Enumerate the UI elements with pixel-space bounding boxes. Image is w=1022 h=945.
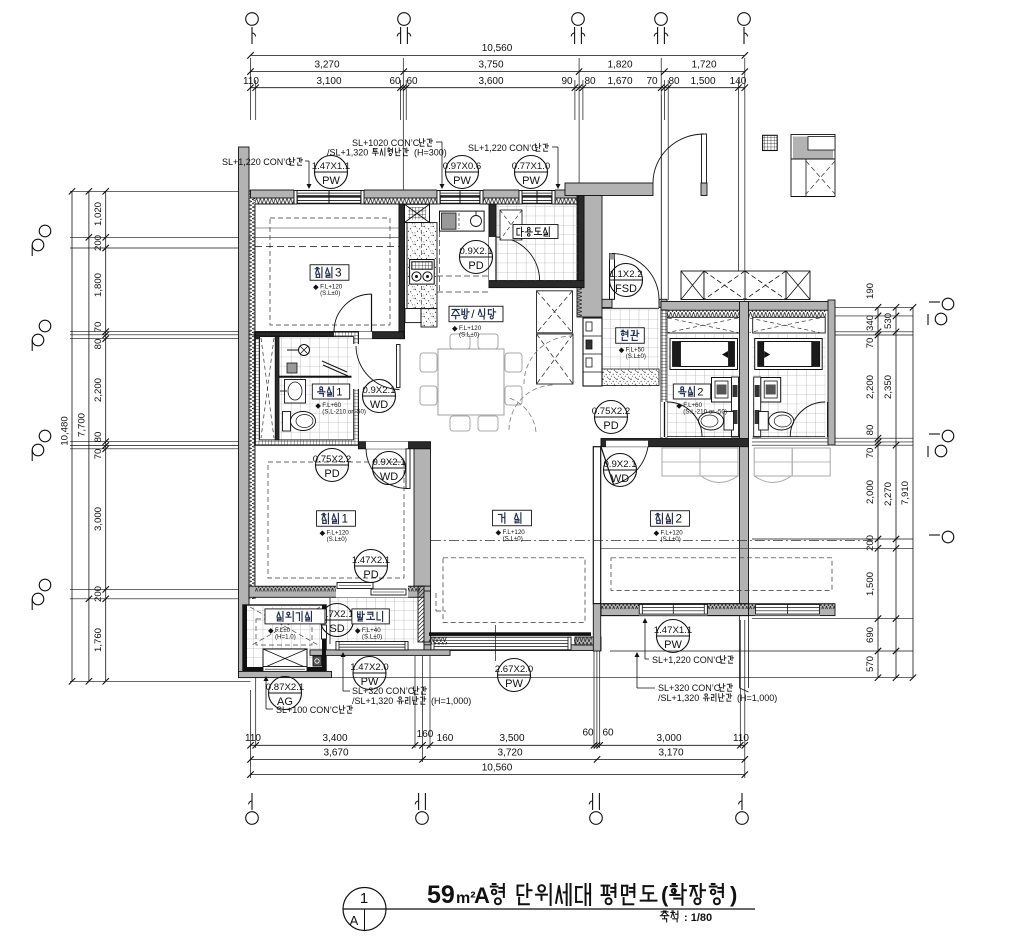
svg-text:3: 3 (335, 266, 342, 280)
svg-text:SL+1020 CON’C: SL+1020 CON’C (352, 138, 420, 148)
svg-text:10,480: 10,480 (60, 416, 71, 445)
svg-text:(S.L±0): (S.L±0) (503, 535, 523, 542)
svg-text:A: A (474, 883, 490, 908)
svg-text:340: 340 (865, 315, 876, 331)
svg-text:/SL+1,320: /SL+1,320 (658, 693, 699, 703)
svg-text:PW: PW (664, 639, 682, 651)
svg-text:1,720: 1,720 (691, 60, 716, 71)
svg-text:WD: WD (611, 473, 629, 485)
svg-text:690: 690 (865, 627, 876, 643)
svg-text:160: 160 (417, 729, 434, 740)
svg-text:2.67X2.0: 2.67X2.0 (495, 664, 533, 675)
svg-text:60: 60 (582, 728, 594, 739)
svg-text:1.47X2.1: 1.47X2.1 (352, 555, 390, 566)
svg-text:3,000: 3,000 (93, 507, 104, 531)
svg-text:70: 70 (865, 448, 876, 459)
svg-text:3,670: 3,670 (323, 748, 348, 759)
svg-text:3,400: 3,400 (322, 733, 347, 744)
svg-text:2,000: 2,000 (865, 480, 876, 504)
svg-text:2,200: 2,200 (93, 378, 104, 402)
svg-text:1: 1 (360, 890, 368, 907)
svg-text:PW: PW (522, 175, 540, 187)
svg-text:0.97X0.6: 0.97X0.6 (443, 161, 481, 172)
svg-text:1,820: 1,820 (607, 60, 632, 71)
svg-text:3,000: 3,000 (656, 733, 681, 744)
svg-text:0.75X2.2: 0.75X2.2 (592, 406, 630, 417)
svg-text:3,500: 3,500 (499, 733, 524, 744)
svg-text:70: 70 (646, 76, 658, 87)
svg-text:SL+100 CON’C: SL+100 CON’C (276, 705, 339, 715)
svg-text:2,200: 2,200 (865, 375, 876, 399)
svg-text:3,720: 3,720 (497, 748, 522, 759)
svg-text:1: 1 (336, 386, 342, 398)
svg-text:110: 110 (243, 76, 259, 87)
svg-text:SL+320 CON’C: SL+320 CON’C (658, 683, 721, 693)
svg-text:/SL+1,320: /SL+1,320 (327, 148, 368, 158)
svg-text:7,910: 7,910 (900, 481, 911, 505)
svg-text:1,500: 1,500 (690, 76, 715, 87)
svg-text:PD: PD (363, 569, 378, 581)
svg-text:80: 80 (865, 425, 876, 436)
svg-text:(S.L-210 or -50): (S.L-210 or -50) (322, 409, 366, 416)
svg-text:A: A (350, 913, 359, 928)
svg-text:1.47X2.0: 1.47X2.0 (350, 662, 388, 673)
svg-text:60: 60 (406, 76, 418, 87)
svg-text:59: 59 (427, 881, 455, 909)
svg-text:10,560: 10,560 (482, 43, 513, 54)
svg-text:0.9X2.1: 0.9X2.1 (362, 385, 395, 396)
svg-text:80: 80 (93, 339, 104, 350)
svg-text:SL+320 CON’C: SL+320 CON’C (352, 686, 415, 696)
svg-text:(H=1,000): (H=1,000) (431, 696, 471, 706)
svg-text:1,800: 1,800 (93, 273, 104, 297)
svg-text:(S.L-210 or -50): (S.L-210 or -50) (683, 409, 727, 416)
svg-text:PD: PD (324, 468, 339, 480)
svg-text:(H=1,000): (H=1,000) (737, 693, 777, 703)
svg-text:190: 190 (865, 283, 876, 299)
svg-text:0.77X1.0: 0.77X1.0 (512, 161, 550, 172)
svg-text:(S.L±0): (S.L±0) (362, 633, 382, 640)
svg-text:1.47X1.1: 1.47X1.1 (654, 625, 692, 636)
svg-text:1,670: 1,670 (607, 76, 632, 87)
svg-text:60: 60 (602, 728, 614, 739)
svg-text:70: 70 (865, 338, 876, 349)
svg-text:: 1/80: : 1/80 (684, 912, 712, 924)
svg-text:/SL+1,320: /SL+1,320 (352, 696, 393, 706)
svg-text:3,750: 3,750 (478, 60, 503, 71)
svg-text:PD: PD (468, 260, 483, 272)
svg-text:2,350: 2,350 (883, 375, 894, 399)
svg-text:2,270: 2,270 (883, 482, 894, 506)
svg-text:(S.L±0): (S.L±0) (661, 536, 681, 543)
svg-text:0.87X2.1: 0.87X2.1 (266, 682, 304, 693)
svg-text:530: 530 (883, 313, 894, 329)
svg-text:90: 90 (561, 76, 573, 87)
svg-text:SL+1,220 CON’C: SL+1,220 CON’C (222, 157, 292, 167)
svg-text:570: 570 (865, 656, 876, 672)
svg-text:3,270: 3,270 (314, 60, 339, 71)
svg-text:SL+1,220 CON’C: SL+1,220 CON’C (652, 655, 722, 665)
svg-text:7,700: 7,700 (77, 413, 88, 437)
svg-text:FSD: FSD (615, 283, 637, 295)
svg-text:3,100: 3,100 (316, 76, 341, 87)
svg-text:1,760: 1,760 (93, 628, 104, 652)
svg-text:1.47X1.1: 1.47X1.1 (312, 161, 350, 172)
svg-text:60: 60 (389, 76, 401, 87)
svg-text:3,170: 3,170 (658, 748, 683, 759)
svg-text:m²: m² (456, 890, 476, 907)
svg-text:0.9X2.1: 0.9X2.1 (603, 459, 636, 470)
svg-text:2: 2 (676, 512, 683, 526)
svg-text:200: 200 (93, 586, 104, 602)
svg-text:110: 110 (245, 733, 261, 744)
svg-text:110: 110 (733, 733, 749, 744)
svg-text:80: 80 (93, 432, 104, 443)
svg-text:WD: WD (370, 399, 388, 411)
svg-text:1.1X2.2: 1.1X2.2 (609, 269, 642, 280)
svg-text:3,600: 3,600 (478, 76, 503, 87)
svg-text:(S.L±0): (S.L±0) (320, 290, 340, 297)
svg-text:PW: PW (453, 175, 471, 187)
svg-text:2: 2 (697, 386, 703, 398)
svg-text:10,560: 10,560 (482, 763, 513, 774)
svg-text:PW: PW (505, 678, 523, 690)
svg-text:70: 70 (93, 322, 104, 333)
svg-text:1,500: 1,500 (865, 572, 876, 596)
svg-text:0.75X2.2: 0.75X2.2 (313, 454, 351, 465)
svg-text:SD: SD (329, 623, 344, 635)
svg-text:1,020: 1,020 (93, 202, 104, 226)
svg-text:(: ( (661, 882, 669, 907)
svg-text:160: 160 (437, 733, 454, 744)
svg-text:SL+1,220 CON’C: SL+1,220 CON’C (468, 143, 538, 153)
svg-text:(H=1.0): (H=1.0) (275, 633, 296, 640)
svg-text:80: 80 (668, 76, 680, 87)
svg-text:0.9X2.1: 0.9X2.1 (459, 246, 492, 257)
svg-text:(S.L±0): (S.L±0) (626, 353, 646, 360)
svg-text:): ) (730, 882, 737, 907)
svg-text:(S.L±0): (S.L±0) (459, 331, 479, 338)
svg-text:(S.L±0): (S.L±0) (327, 536, 347, 543)
svg-text:WD: WD (380, 471, 398, 483)
svg-text:80: 80 (584, 76, 596, 87)
svg-text:0.9X2.1: 0.9X2.1 (372, 457, 405, 468)
svg-text:70: 70 (93, 449, 104, 460)
svg-text:1: 1 (342, 512, 349, 526)
svg-text:PW: PW (322, 175, 340, 187)
svg-text:PD: PD (603, 420, 618, 432)
